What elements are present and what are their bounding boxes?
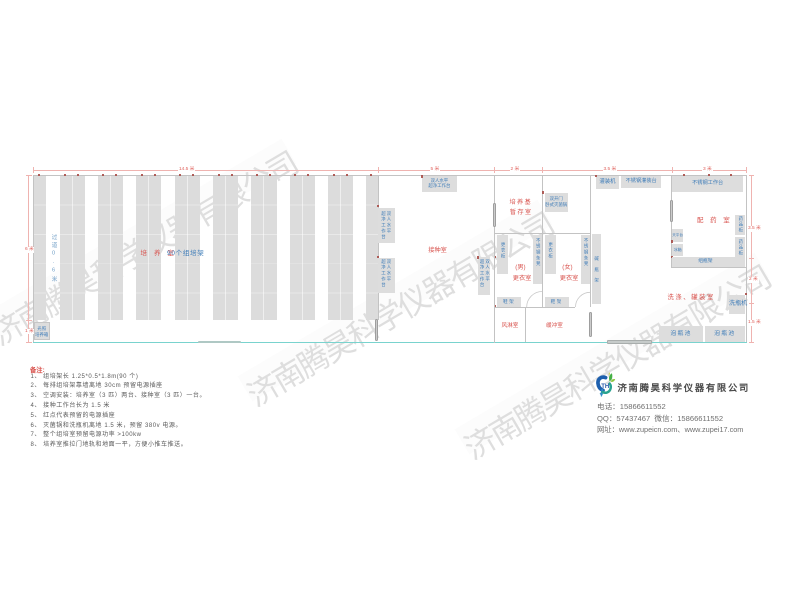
svg-text:TH: TH bbox=[601, 384, 609, 390]
